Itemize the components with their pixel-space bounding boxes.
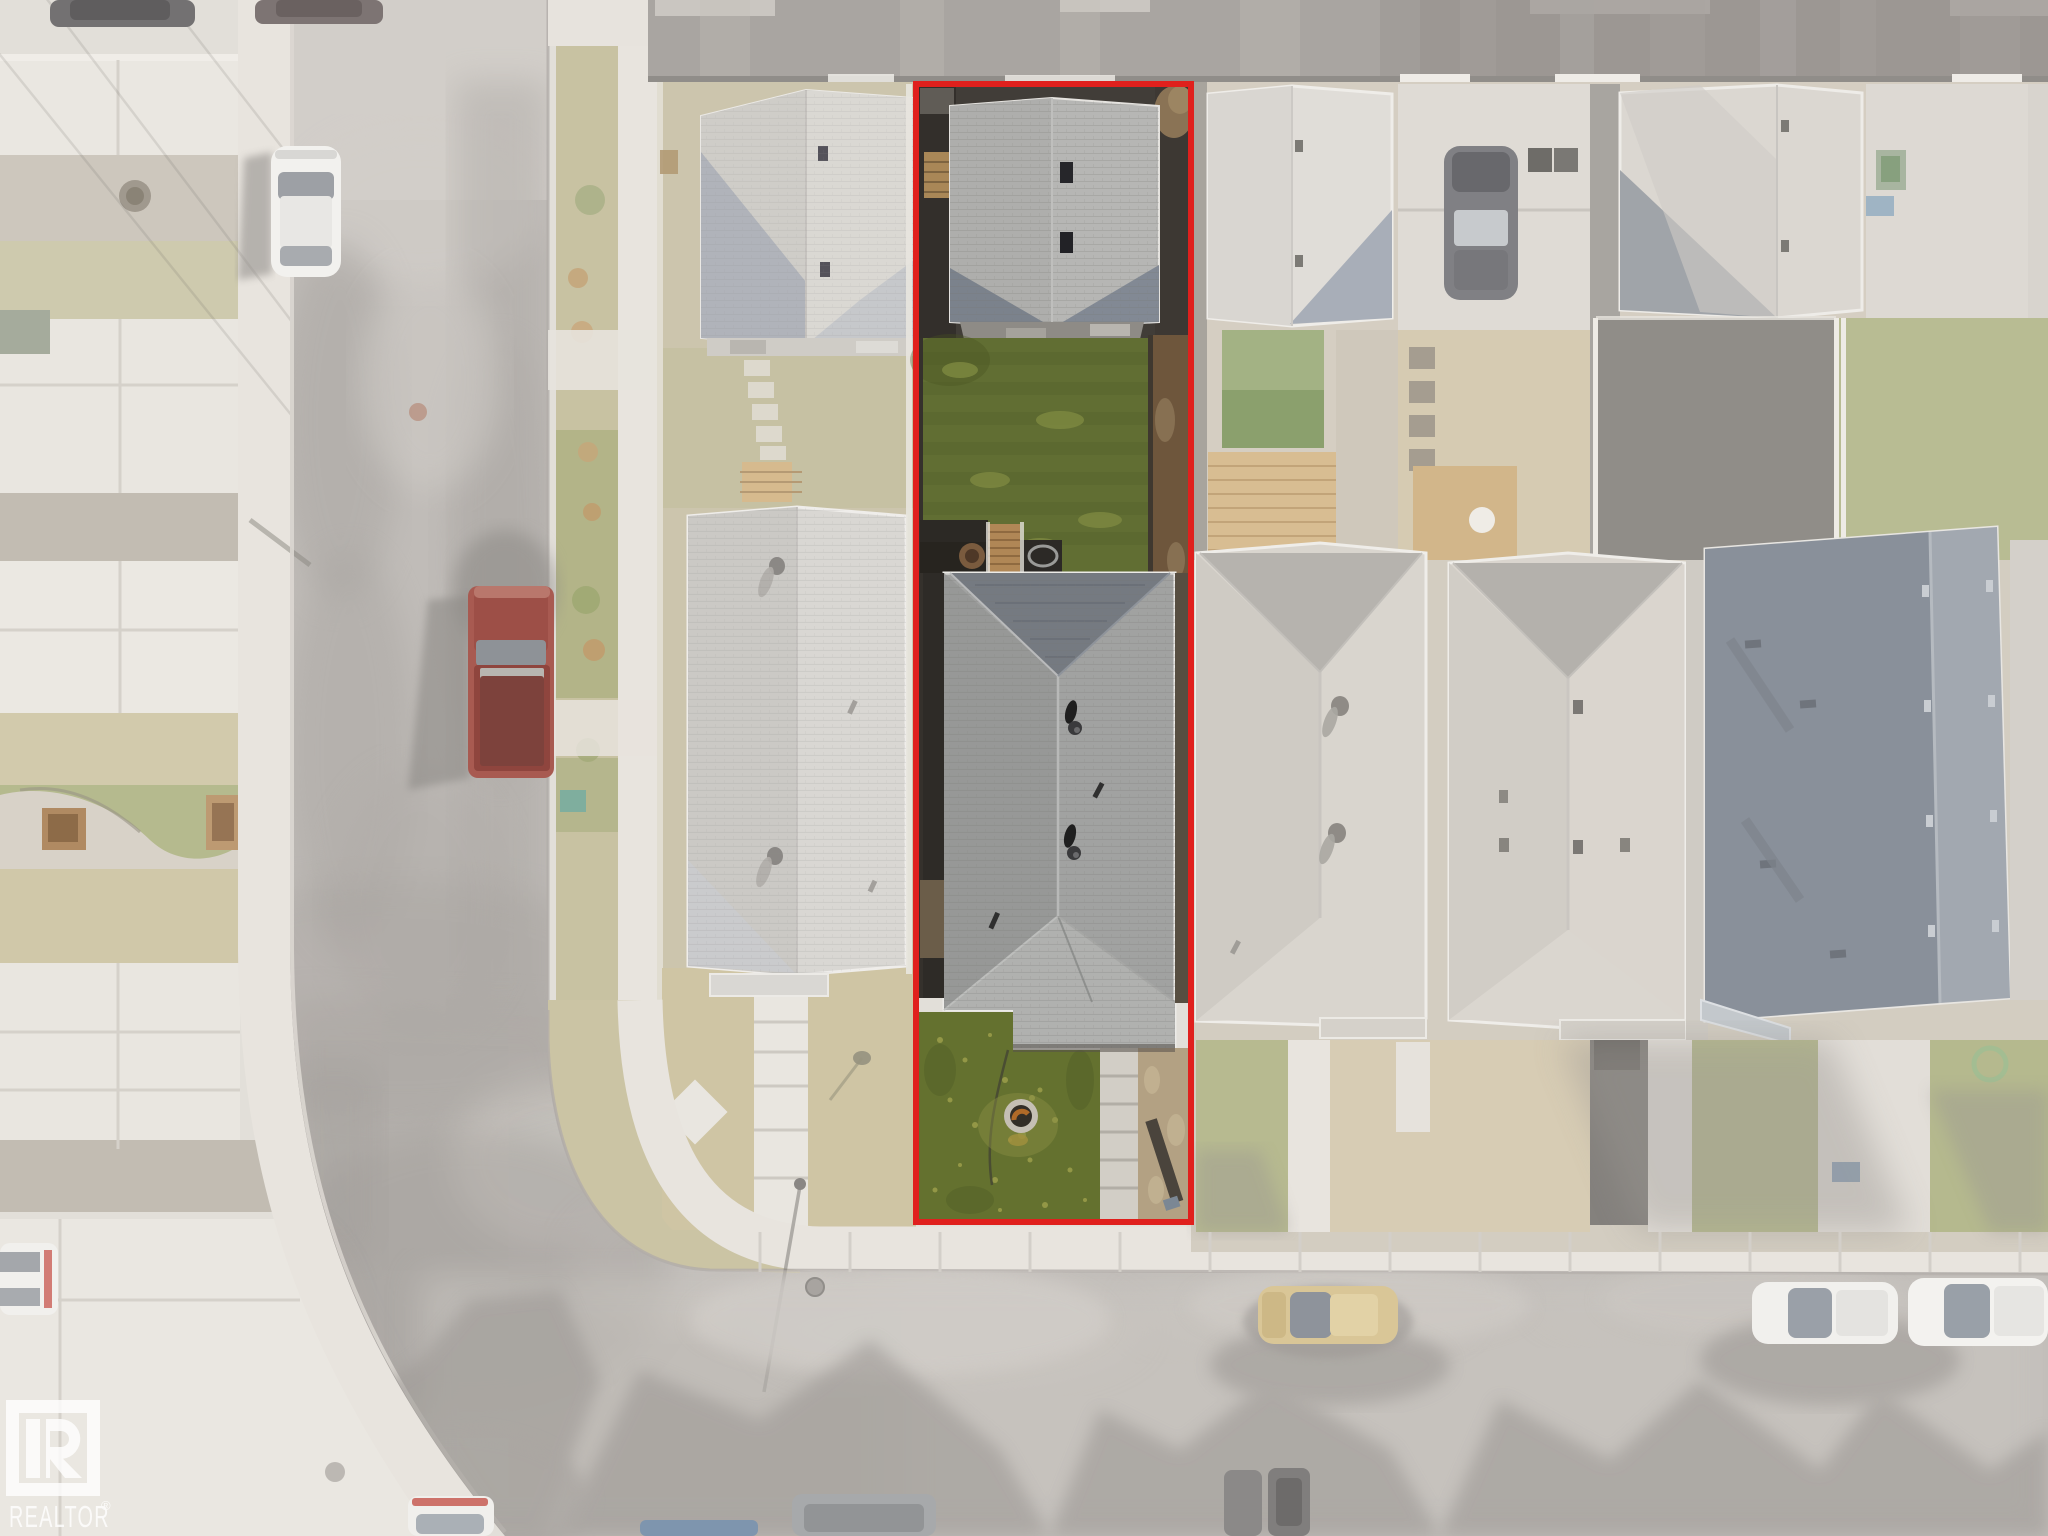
svg-text:REALTOR: REALTOR (9, 1498, 110, 1534)
svg-text:®: ® (101, 1498, 111, 1513)
